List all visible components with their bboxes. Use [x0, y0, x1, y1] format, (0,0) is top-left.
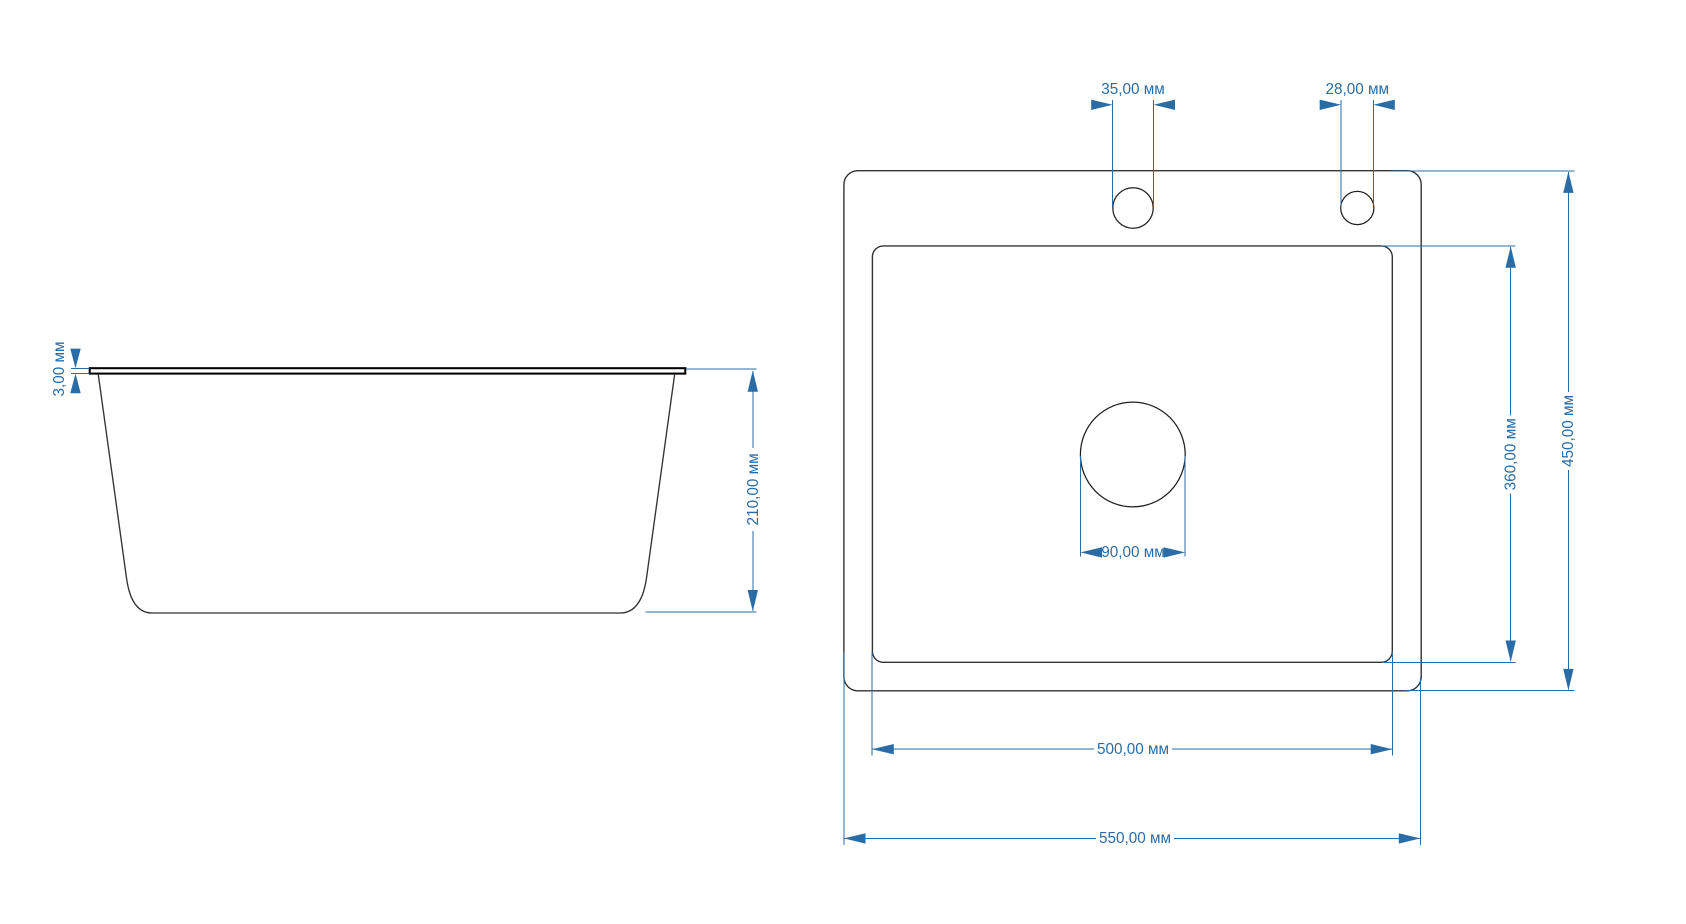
svg-text:3,00 мм: 3,00 мм [51, 341, 68, 396]
svg-text:35,00 мм: 35,00 мм [1101, 81, 1165, 98]
svg-text:210,00 мм: 210,00 мм [745, 453, 762, 525]
svg-text:500,00 мм: 500,00 мм [1097, 741, 1169, 758]
svg-text:360,00 мм: 360,00 мм [1502, 418, 1519, 490]
svg-text:28,00 мм: 28,00 мм [1326, 81, 1390, 98]
svg-text:450,00 мм: 450,00 мм [1560, 395, 1577, 467]
svg-text:90,00 мм: 90,00 мм [1101, 544, 1165, 561]
svg-text:550,00 мм: 550,00 мм [1099, 830, 1171, 847]
